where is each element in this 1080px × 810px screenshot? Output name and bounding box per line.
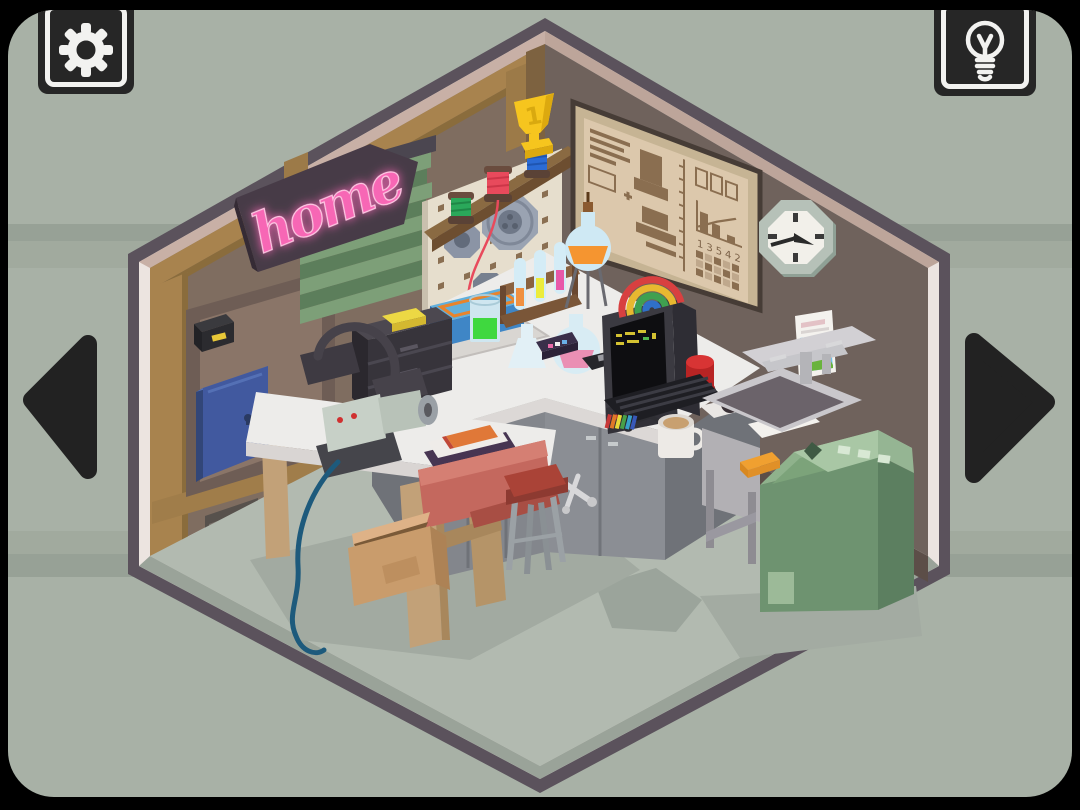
next-arrow[interactable] <box>974 342 1046 474</box>
prev-arrow[interactable] <box>32 344 88 470</box>
gear-icon <box>38 10 134 94</box>
thread-spool-green[interactable] <box>448 192 474 224</box>
washer-sticker <box>768 572 794 604</box>
washing-machine[interactable] <box>740 430 914 612</box>
game-screen: home <box>0 0 1080 810</box>
beaker-green[interactable] <box>470 295 500 342</box>
device-frame-background: home <box>8 10 1072 797</box>
room-scene: home <box>8 10 1072 797</box>
settings-button[interactable] <box>38 10 134 94</box>
lightbulb-icon <box>934 10 1036 96</box>
hint-button[interactable] <box>934 10 1036 96</box>
